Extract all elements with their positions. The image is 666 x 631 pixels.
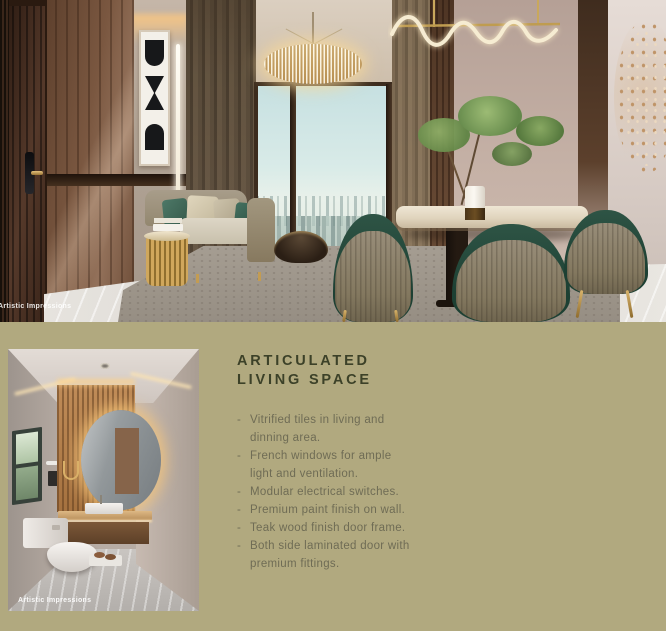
bullet-text: Modular electrical switches. — [250, 483, 399, 501]
brochure-page: Artistic Impressions — [0, 0, 666, 631]
bath-vanity-drawers — [61, 522, 149, 544]
bath-wood-cove-glow — [57, 379, 135, 389]
chandelier-stem — [312, 12, 314, 44]
list-item: - Vitrified tiles in living and dinning … — [237, 411, 457, 447]
bullet-text: Vitrified tiles in living and dinning ar… — [250, 411, 384, 447]
bath-faucet — [100, 495, 102, 504]
list-item: - French windows for ample light and ven… — [237, 447, 457, 483]
mirror-sheen — [81, 410, 123, 510]
list-item: - Both side laminated door with premium … — [237, 537, 457, 573]
bullet-line: French windows for ample — [250, 447, 391, 465]
bullet-dash: - — [237, 501, 250, 519]
chair-body — [456, 240, 567, 322]
dining-chair-left — [333, 214, 413, 322]
chair-body — [335, 231, 410, 322]
bullet-line: Modular electrical switches. — [250, 483, 399, 501]
dining-chair-center — [452, 224, 570, 322]
bullet-text: Premium paint finish on wall. — [250, 501, 405, 519]
gold-side-table — [146, 236, 188, 286]
hero-door-edge — [0, 0, 9, 322]
table-candle-base — [465, 208, 485, 220]
hero-image: Artistic Impressions — [0, 0, 666, 322]
bullet-line: Both side laminated door with — [250, 537, 410, 555]
list-item: - Premium paint finish on wall. — [237, 501, 457, 519]
bath-window-pane-top — [16, 431, 38, 464]
coffee-table — [274, 231, 328, 263]
bullet-text: French windows for ample light and venti… — [250, 447, 391, 483]
hero-wall-rail — [44, 174, 192, 186]
list-item: - Teak wood finish door frame. — [237, 519, 457, 537]
bullet-dash: - — [237, 519, 250, 537]
art-shape-bottom — [145, 124, 164, 150]
plant-foliage — [458, 96, 522, 136]
list-item: - Modular electrical switches. — [237, 483, 457, 501]
bath-basin — [85, 503, 123, 514]
dining-chair-right — [564, 210, 648, 294]
bath-window — [12, 427, 42, 505]
hero-led-strip — [176, 44, 180, 202]
hero-framed-art — [139, 30, 170, 166]
section-title: ARTICULATED LIVING SPACE — [237, 352, 457, 390]
bullet-line: premium fittings. — [250, 555, 410, 573]
bullet-line: Premium paint finish on wall. — [250, 501, 405, 519]
chair-body — [567, 223, 646, 294]
bath-ceiling-spotlight — [100, 363, 110, 369]
bullet-text: Teak wood finish door frame. — [250, 519, 405, 537]
side-table-books — [153, 224, 183, 231]
section-title-line1: ARTICULATED — [237, 352, 457, 371]
sofa-leg — [196, 274, 199, 283]
bathroom-image: Artistic Impressions — [8, 349, 199, 611]
art-shape-middle — [145, 76, 164, 110]
slipper — [105, 554, 116, 560]
table-candle — [465, 186, 485, 210]
bullet-line: dinning area. — [250, 429, 384, 447]
hero-door-handle — [31, 171, 43, 175]
bullet-dash: - — [237, 483, 250, 501]
bullet-text: Both side laminated door with premium fi… — [250, 537, 410, 573]
hero-credit-label: Artistic Impressions — [0, 303, 71, 310]
bathroom-credit-label: Artistic Impressions — [18, 597, 91, 604]
art-shape-top — [145, 40, 164, 66]
bath-round-mirror — [81, 410, 161, 510]
feature-section: ARTICULATED LIVING SPACE - Vitrified til… — [237, 352, 457, 573]
plant-foliage — [492, 142, 532, 166]
bullet-line: Vitrified tiles in living and — [250, 411, 384, 429]
section-title-line2: LIVING SPACE — [237, 371, 457, 390]
bullet-dash: - — [237, 411, 250, 447]
bath-window-pane-bottom — [16, 465, 38, 500]
sofa-leg — [258, 272, 261, 281]
feature-list: - Vitrified tiles in living and dinning … — [237, 411, 457, 573]
sofa-armrest — [247, 198, 275, 262]
bullet-line: Teak wood finish door frame. — [250, 519, 405, 537]
crystal-ring-chandelier — [264, 44, 362, 84]
hero-wood-panel-wall — [44, 0, 134, 322]
bath-gold-towel-hook — [63, 461, 79, 480]
bullet-dash: - — [237, 537, 250, 573]
toilet-flush-button — [52, 525, 60, 530]
gold-squiggle-pendant-light — [388, 0, 570, 62]
slipper — [94, 552, 105, 558]
bullet-line: light and ventilation. — [250, 465, 391, 483]
plant-foliage — [516, 116, 564, 146]
bullet-dash: - — [237, 447, 250, 483]
